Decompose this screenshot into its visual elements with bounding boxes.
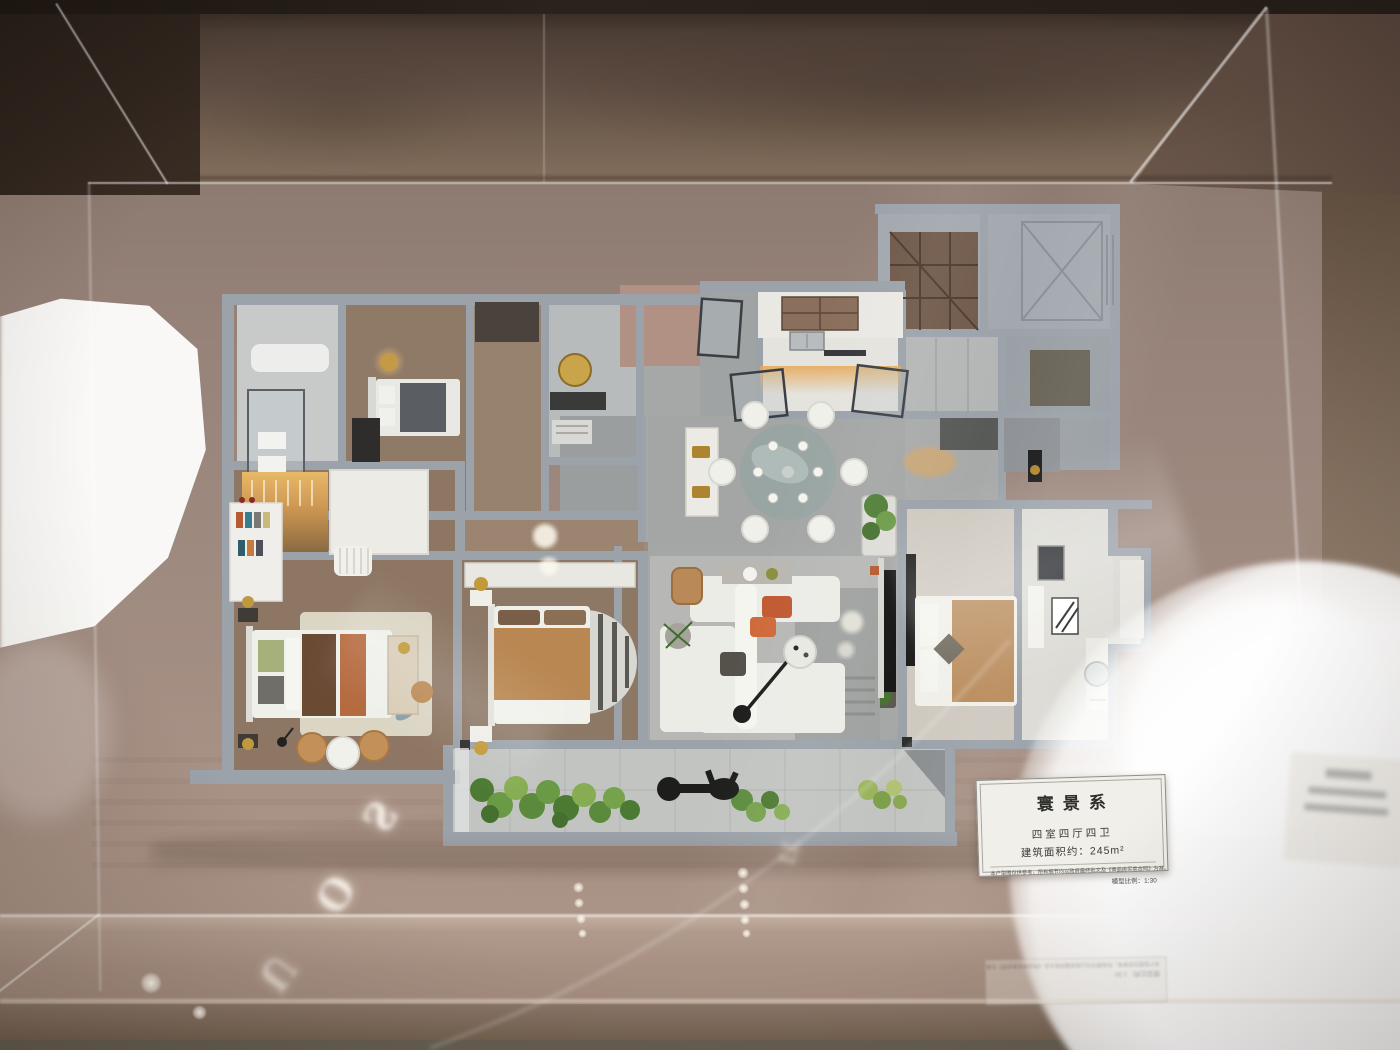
light-dot bbox=[573, 882, 584, 893]
light-glow-bottom-left-2 bbox=[192, 1005, 207, 1020]
light-glow-bottom-left bbox=[140, 972, 162, 994]
base-front-edge-line bbox=[0, 999, 1400, 1003]
orange-pillow-2 bbox=[750, 617, 776, 637]
light-dot bbox=[574, 898, 584, 908]
gold-lamp bbox=[474, 577, 488, 591]
tv-panel bbox=[884, 570, 896, 692]
label-card-reflection: 模型比例：1:30 本户型图仅供参考，所有细节均以政府最终批文及《商品房买卖合同… bbox=[985, 956, 1168, 1005]
light-dot bbox=[578, 929, 587, 938]
card-area-line: 建筑面积约：245m² bbox=[990, 841, 1156, 861]
blurred-text-line bbox=[1304, 803, 1388, 816]
light-dot bbox=[739, 899, 750, 910]
blurred-text-line bbox=[1325, 768, 1372, 780]
light-dot bbox=[742, 929, 751, 938]
gray-pillow bbox=[720, 652, 746, 676]
living-room bbox=[650, 556, 896, 740]
blurred-text-line bbox=[1308, 786, 1386, 798]
lounge-chair-2 bbox=[359, 731, 389, 761]
leather-armchair bbox=[672, 568, 702, 604]
case-back-top-edge bbox=[88, 182, 1332, 184]
light-dot bbox=[738, 883, 749, 894]
card-series-title: 寰景系 bbox=[988, 786, 1155, 816]
card-layout-line: 四室四厅四卫 bbox=[989, 823, 1155, 843]
card-scale-reflected: 模型比例：1:30 bbox=[992, 970, 1160, 983]
showroom-photo: S O U IT 寰景系 四室四厅四卫 建筑面积约：245m² 本户型图仅供参考… bbox=[0, 0, 1400, 1050]
desk-chair bbox=[411, 681, 433, 703]
light-dot bbox=[737, 867, 749, 879]
card-disclaimer-reflected: 本户型图仅供参考，所有细节均以政府最终批文及《商品房买卖合同》为准。 bbox=[1002, 960, 1160, 970]
case-back-edge-shadow bbox=[88, 176, 1332, 180]
round-table bbox=[327, 737, 359, 769]
lounge-chair bbox=[297, 733, 327, 763]
spec-label-card: 寰景系 四室四厅四卫 建筑面积约：245m² 本户型图仅供参考，所有细节均以政府… bbox=[976, 774, 1169, 877]
tv-panel-2 bbox=[906, 554, 916, 666]
side-table bbox=[784, 636, 816, 668]
adjacent-model-card-blurred bbox=[1283, 752, 1400, 868]
case-front-bottom-edge bbox=[0, 914, 1400, 917]
orange-pillow bbox=[762, 596, 792, 618]
light-dot bbox=[740, 915, 750, 925]
gold-lamp-2 bbox=[474, 741, 488, 755]
white-cabinet bbox=[330, 470, 428, 554]
